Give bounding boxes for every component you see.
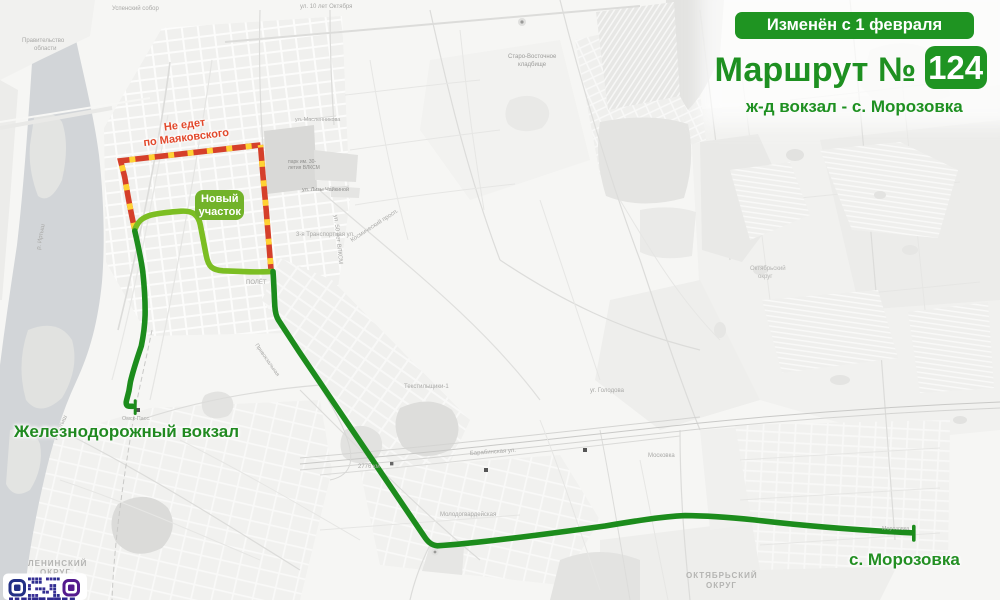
svg-text:ОКРУГ: ОКРУГ: [706, 581, 737, 590]
svg-text:Старо-Восточное: Старо-Восточное: [508, 54, 557, 60]
svg-text:Морозовка: Морозовка: [882, 526, 909, 532]
svg-text:области: области: [34, 46, 56, 52]
svg-text:ЛЕНИНСКИЙ: ЛЕНИНСКИЙ: [28, 559, 87, 568]
svg-text:Космический просп.: Космический просп.: [349, 207, 400, 243]
svg-text:Московка: Московка: [648, 453, 675, 459]
svg-text:уг. Голодова: уг. Голодова: [590, 388, 625, 394]
svg-text:2776 км: 2776 км: [358, 464, 380, 470]
svg-text:летия ВЛКСМ: летия ВЛКСМ: [288, 165, 320, 171]
svg-text:ОКТЯБРЬСКИЙ: ОКТЯБРЬСКИЙ: [686, 571, 758, 580]
svg-text:3-я Транспортная ул.: 3-я Транспортная ул.: [296, 232, 355, 238]
svg-text:Привокзальная: Привокзальная: [253, 343, 280, 378]
svg-text:Правительство: Правительство: [22, 38, 65, 44]
svg-text:ул. Масленникова: ул. Масленникова: [295, 117, 340, 123]
svg-text:Октябрьский: Октябрьский: [750, 265, 786, 272]
svg-text:округ: округ: [758, 274, 773, 280]
svg-text:ул. 10 лет Октября: ул. 10 лет Октября: [300, 4, 352, 10]
svg-text:ул. Лизы Чайкиной: ул. Лизы Чайкиной: [302, 186, 349, 193]
svg-text:Текстильщики-1: Текстильщики-1: [404, 384, 449, 390]
svg-text:кладбище: кладбище: [518, 62, 547, 68]
svg-text:ПОЛЁТ: ПОЛЁТ: [246, 279, 267, 286]
svg-text:Успенский собор: Успенский собор: [112, 5, 159, 12]
svg-text:Молодогвардейская: Молодогвардейская: [440, 511, 496, 518]
